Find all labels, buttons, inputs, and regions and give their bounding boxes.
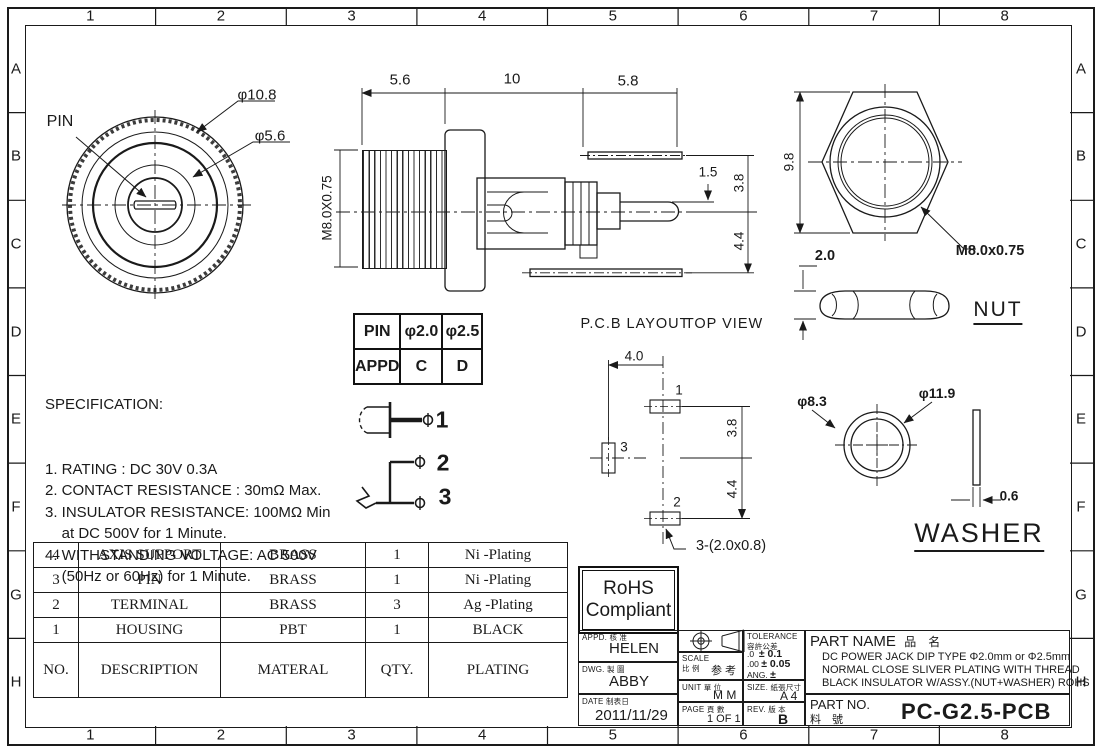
parts-table-cell: HOUSING: [79, 618, 221, 643]
title-block-projection-cell: [678, 630, 743, 652]
label-pcb-dim-v2: 4.4: [725, 480, 739, 499]
label-pcb-pad2: 2: [673, 495, 681, 509]
label-nut-title: NUT: [973, 299, 1022, 325]
parts-table-cell: QTY.: [366, 643, 429, 698]
label-front-dia-inner: φ5.6: [255, 129, 286, 144]
part-name-label: PART NAME: [810, 633, 896, 650]
parts-table-cell: NO.: [34, 643, 79, 698]
parts-table-row: 2TERMINALBRASS3Ag -Plating: [34, 593, 568, 618]
label-sec-dim-lead-top: 3.8: [732, 174, 746, 193]
pin-diameter-table: PINφ2.0φ2.5APPDCD: [353, 313, 483, 385]
thread-hatching: [362, 150, 447, 269]
appd-value: HELEN: [609, 640, 659, 657]
label-sec-dim-lead-len: 5.8: [618, 74, 639, 89]
parts-table-cell: 1: [34, 618, 79, 643]
page-value: 1 OF 1: [707, 713, 741, 725]
pin-symbols: [357, 402, 433, 510]
label-pin-sym-3: 3: [439, 486, 452, 509]
part-name-label-cn: 品 名: [904, 635, 940, 649]
unit-value: M M: [713, 688, 736, 702]
specification-line: 1. RATING : DC 30V 0.3A: [45, 459, 355, 481]
label-pcb-title: P.C.B LAYOUT: [581, 317, 690, 332]
rohs-line2: Compliant: [586, 600, 672, 622]
parts-table-cell: 2: [34, 593, 79, 618]
appd-label: APPD.: [582, 633, 607, 642]
part-no-label: PART NO.: [810, 697, 870, 712]
parts-table-cell: PIN: [79, 568, 221, 593]
rev-label: REV.: [747, 705, 766, 714]
label-pin-callout: PIN: [47, 114, 74, 130]
label-sec-dim-body-len: 10: [504, 72, 521, 87]
washer-view: [812, 402, 1001, 507]
dwg-value: ABBY: [609, 673, 649, 690]
title-block: APPD. 核 准 HELEN DWG. 製 圖 ABBY DATE 制表日 2…: [578, 630, 1070, 726]
specification-line: 2. CONTACT RESISTANCE : 30mΩ Max.: [45, 480, 355, 502]
parts-table-cell: 1: [366, 568, 429, 593]
label-washer-dim-thickness: 0.6: [1000, 489, 1019, 503]
label-washer-dia-inner: φ8.3: [797, 394, 826, 408]
unit-label: UNIT: [682, 683, 701, 692]
scale-label-cn: 比 例: [682, 664, 700, 673]
parts-table-cell: TERMINAL: [79, 593, 221, 618]
parts-table-row: 4AXIS SUPPORTBRASS1Ni -Plating: [34, 543, 568, 568]
label-washer-title: WASHER: [914, 520, 1044, 552]
label-sec-dim-pin-offset: 1.5: [699, 165, 718, 179]
title-block-size-cell: SIZE. 紙張尺寸 A 4: [743, 680, 805, 702]
parts-table-cell: BRASS: [221, 593, 366, 618]
tol-key-3: ANG.: [747, 670, 768, 680]
parts-table-cell: 1: [366, 543, 429, 568]
tol-key-2: .00: [747, 659, 759, 669]
label-sec-dim-lead-bottom: 4.4: [732, 232, 746, 251]
date-label-cn: 制表日: [606, 697, 629, 706]
label-pcb-subtitle: TOP VIEW: [685, 317, 763, 332]
label-pcb-pad1: 1: [675, 383, 683, 397]
title-block-dwg-cell: DWG. 製 圖 ABBY: [578, 662, 678, 694]
label-pcb-dim-v1: 3.8: [725, 419, 739, 438]
specification-line: 3. INSULATOR RESISTANCE: 100MΩ Min: [45, 502, 355, 524]
size-value: A 4: [780, 689, 797, 703]
label-washer-dia-outer: φ11.9: [919, 386, 956, 400]
label-sec-dim-thread-len: 5.6: [390, 73, 411, 88]
label-nut-thread: M8.0x0.75: [956, 244, 1025, 259]
pin-table-cell: φ2.0: [400, 314, 442, 349]
title-block-scale-cell: SCALE比 例 参 考: [678, 652, 743, 680]
parts-table-row: 3PINBRASS1Ni -Plating: [34, 568, 568, 593]
label-nut-dim-across: 9.8: [782, 153, 796, 172]
parts-table-cell: Ag -Plating: [429, 593, 568, 618]
part-no-label-cn: 料 號: [810, 711, 843, 727]
parts-table-cell: PLATING: [429, 643, 568, 698]
label-front-dia-outer: φ10.8: [238, 88, 277, 103]
parts-table-cell: 3: [366, 593, 429, 618]
pin-table-cell: φ2.5: [442, 314, 482, 349]
rohs-line1: RoHS: [603, 578, 654, 600]
dwg-label: DWG.: [582, 665, 605, 674]
title-block-date-cell: DATE 制表日 2011/11/29: [578, 694, 678, 726]
scale-value: 参 考: [711, 662, 736, 678]
pin-table-cell: D: [442, 349, 482, 384]
pin-table-row: PINφ2.0φ2.5: [354, 314, 482, 349]
part-desc-line2: NORMAL CLOSE SLIVER PLATING WITH THREAD: [822, 664, 1080, 676]
title-block-part-no-cell: PART NO. 料 號 PC-G2.5-PCB: [805, 694, 1070, 726]
label-nut-dim-thickness: 2.0: [815, 249, 835, 264]
part-no-value: PC-G2.5-PCB: [901, 699, 1051, 725]
parts-table-cell: BLACK: [429, 618, 568, 643]
title-block-unit-cell: UNIT 單 位 M M: [678, 680, 743, 702]
parts-table-row: 1HOUSINGPBT1BLACK: [34, 618, 568, 643]
part-desc-line1: DC POWER JACK DIP TYPE Φ2.0mm or Φ2.5mm: [822, 651, 1070, 663]
title-block-rev-cell: REV. 版 本 B: [743, 702, 805, 726]
parts-table-cell: AXIS SUPPORT: [79, 543, 221, 568]
page-label: PAGE: [682, 705, 704, 714]
title-block-appd-cell: APPD. 核 准 HELEN: [578, 630, 678, 662]
scale-label: SCALE: [682, 654, 709, 663]
title-block-part-name-cell: PART NAME 品 名 DC POWER JACK DIP TYPE Φ2.…: [805, 630, 1070, 694]
title-block-page-cell: PAGE 頁 數 1 OF 1: [678, 702, 743, 726]
label-pin-sym-1: 1: [436, 409, 449, 432]
parts-table-cell: BRASS: [221, 568, 366, 593]
parts-table-cell: DESCRIPTION: [79, 643, 221, 698]
parts-table-cell: Ni -Plating: [429, 543, 568, 568]
title-block-tolerance-cell: TOLERANCE容許公差 .0 ± 0.1 .00 ± 0.05 ANG. ±: [743, 630, 805, 680]
parts-table-row: NO.DESCRIPTIONMATERALQTY.PLATING: [34, 643, 568, 698]
pin-table-cell: APPD: [354, 349, 400, 384]
tolerance-label: TOLERANCE: [747, 632, 798, 641]
specification-title: SPECIFICATION:: [45, 394, 355, 416]
pin-table-cell: C: [400, 349, 442, 384]
label-pcb-dim-h: 4.0: [625, 349, 644, 363]
parts-table-cell: 4: [34, 543, 79, 568]
rohs-compliant-badge: RoHS Compliant: [578, 566, 679, 634]
pin-table-row: APPDCD: [354, 349, 482, 384]
label-sec-dim-thread: M8.0X0.75: [320, 175, 334, 240]
parts-table-cell: BRASS: [221, 543, 366, 568]
pin-table-cell: PIN: [354, 314, 400, 349]
size-label: SIZE.: [747, 683, 768, 692]
drawing-sheet: 1122334455667788AABBCCDDEEFFGGHH: [0, 0, 1100, 751]
label-pcb-pad3: 3: [620, 440, 628, 454]
parts-list-table: 4AXIS SUPPORTBRASS1Ni -Plating3PINBRASS1…: [33, 542, 568, 698]
label-pcb-pad-note: 3-(2.0x0.8): [696, 539, 766, 554]
part-desc-line3: BLACK INSULATOR W/ASSY.(NUT+WASHER) ROHS: [822, 677, 1090, 689]
parts-table-cell: 1: [366, 618, 429, 643]
parts-table-cell: MATERAL: [221, 643, 366, 698]
parts-table-cell: Ni -Plating: [429, 568, 568, 593]
nut-view: [794, 84, 976, 340]
label-pin-sym-2: 2: [437, 452, 450, 475]
parts-table-cell: PBT: [221, 618, 366, 643]
date-value: 2011/11/29: [595, 707, 668, 724]
parts-table-cell: 3: [34, 568, 79, 593]
date-label: DATE: [582, 697, 604, 706]
rev-value: B: [778, 711, 788, 727]
pcb-layout-view: [590, 356, 752, 549]
